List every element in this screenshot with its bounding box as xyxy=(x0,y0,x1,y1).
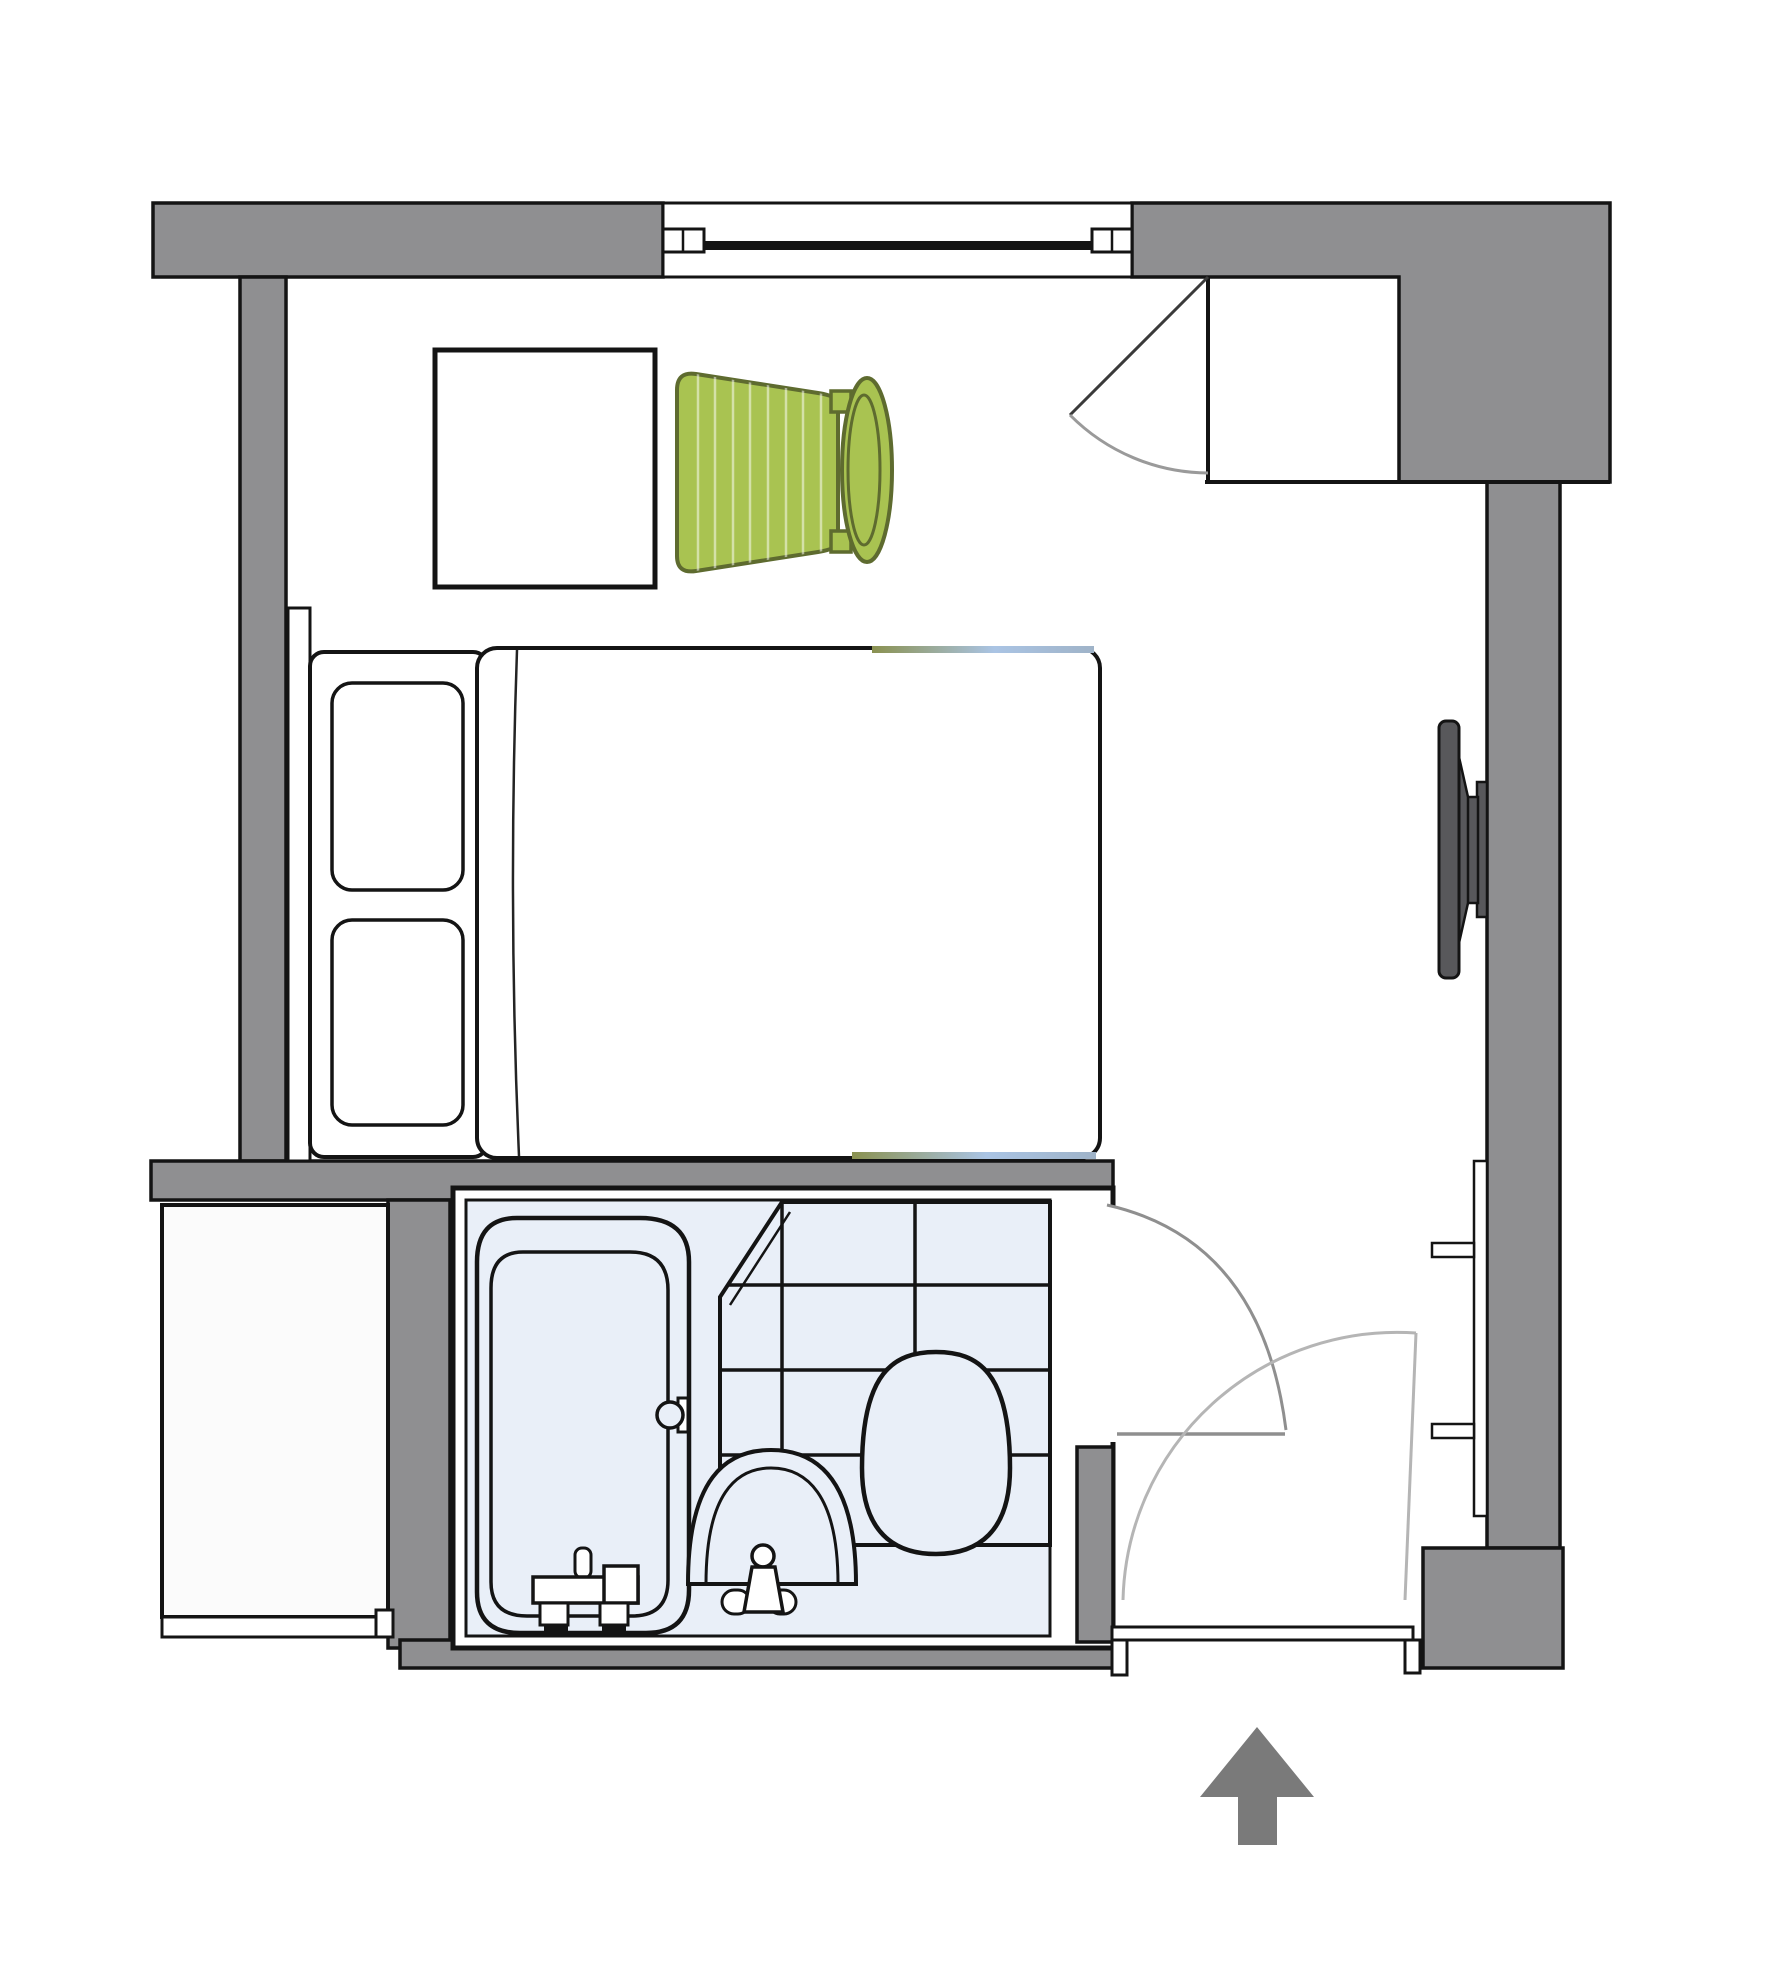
closet-door-leaf xyxy=(1070,277,1208,415)
bed xyxy=(288,608,1100,1161)
mattress xyxy=(477,648,1100,1158)
entrance-threshold xyxy=(1112,1627,1413,1640)
pillow-top xyxy=(332,683,463,890)
entrance xyxy=(1112,1627,1420,1675)
wall-bathroom-left xyxy=(388,1200,450,1648)
entrance-stop-right xyxy=(1405,1640,1420,1673)
adjacent-room xyxy=(162,1205,393,1637)
window xyxy=(663,203,1132,277)
wall-left xyxy=(240,277,286,1161)
adjacent-room-floor xyxy=(162,1205,388,1617)
doors xyxy=(1107,1205,1416,1600)
window-frame xyxy=(663,203,1132,277)
bathroom xyxy=(453,1188,1120,1648)
sink-faucet-body xyxy=(744,1567,783,1612)
adjacent-room-door-stop xyxy=(376,1610,393,1637)
floor-plan-canvas xyxy=(0,0,1792,1977)
shelf-bracket-bottom xyxy=(1432,1424,1474,1438)
bathroom-door-opening xyxy=(1106,1206,1120,1442)
tv-unit xyxy=(1439,721,1487,978)
faucet-foot-right xyxy=(600,1603,628,1625)
entrance-stop-left xyxy=(1112,1640,1127,1675)
bathroom-door-swing-arc xyxy=(1107,1205,1286,1430)
shelf-rail xyxy=(1474,1161,1487,1516)
wall-top-right-block xyxy=(1132,203,1610,482)
tv-screen xyxy=(1439,721,1459,978)
bathroom-door-side-wall xyxy=(1077,1447,1113,1642)
faucet-spout xyxy=(575,1548,591,1578)
closet-door-swing-arc xyxy=(1070,415,1208,473)
faucet-base-right xyxy=(602,1625,626,1633)
bed-runner-bottom-edge xyxy=(852,1152,1096,1159)
wall-bottom-right-block xyxy=(1423,1548,1563,1668)
bathtub-handle xyxy=(657,1402,683,1428)
wall-top-left xyxy=(153,203,663,277)
bed-head-panel xyxy=(288,608,310,1161)
toilet-bowl xyxy=(862,1352,1010,1554)
shelf-bracket-top xyxy=(1432,1243,1474,1257)
faucet-foot-left xyxy=(540,1603,568,1625)
faucet-base-left xyxy=(544,1625,568,1633)
entrance-door-leaf xyxy=(1405,1333,1416,1600)
chair xyxy=(677,374,892,572)
bed-runner-top-edge xyxy=(872,646,1094,653)
wall-shelf xyxy=(1432,1161,1487,1516)
adjacent-room-threshold xyxy=(162,1617,390,1637)
sink-faucet-head xyxy=(752,1545,774,1567)
floor-plan xyxy=(0,0,1792,1977)
entrance-door-swing-arc xyxy=(1123,1332,1416,1600)
entry-direction-arrow-icon xyxy=(1200,1727,1314,1845)
faucet-valve xyxy=(604,1566,638,1603)
wall-right xyxy=(1487,482,1560,1548)
chair-seat xyxy=(677,374,838,572)
pillow-bottom xyxy=(332,920,463,1125)
desk xyxy=(435,350,655,587)
window-glass xyxy=(704,241,1093,250)
